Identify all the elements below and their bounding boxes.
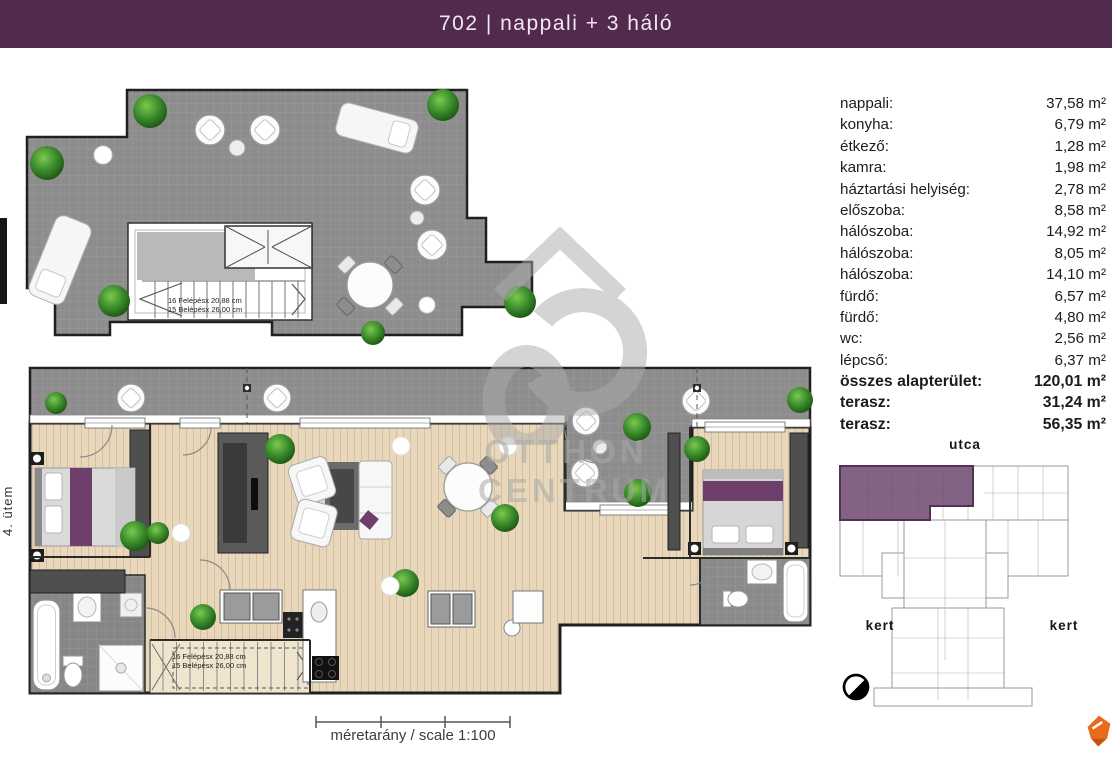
toilet (728, 591, 748, 607)
stair-note-line: 15 Belépésx 26,00 cm (168, 305, 242, 314)
scale-label: méretarány / scale 1:100 (300, 727, 526, 744)
stair-note-line: 15 Belépésx 26,00 cm (172, 661, 246, 670)
kitchen-sink (311, 602, 327, 622)
street-label: utca (890, 437, 1040, 452)
stair-note-lower: 16 Felépésx 20,88 cm 15 Belépésx 26,00 c… (172, 652, 246, 670)
room-area: 4,80 m² (1055, 307, 1107, 328)
room-area: 1,28 m² (1055, 136, 1107, 157)
room-name: hálószoba: (840, 221, 913, 242)
room-name: fürdő: (840, 307, 879, 328)
stair-note-upper: 16 Felépésx 20,88 cm 15 Belépésx 26,00 c… (168, 296, 242, 314)
room-area: 6,57 m² (1055, 286, 1107, 307)
room-name: fürdő: (840, 286, 879, 307)
toilet (64, 663, 82, 687)
room-area: 14,92 m² (1046, 221, 1106, 242)
area-row: fürdő:6,57 m² (840, 286, 1106, 307)
room-name: terasz: (840, 392, 891, 413)
area-row: konyha:6,79 m² (840, 114, 1106, 135)
roof-terrace-plan (15, 85, 540, 347)
stair-note-line: 16 Felépésx 20,88 cm (172, 652, 246, 661)
area-table: nappali:37,58 m² konyha:6,79 m² étkező:1… (840, 93, 1106, 435)
room-name: nappali: (840, 93, 893, 114)
area-row: étkező:1,28 m² (840, 136, 1106, 157)
bathroom-right (700, 558, 810, 625)
compass-icon (842, 673, 870, 701)
area-row-total: terasz:56,35 m² (840, 414, 1106, 435)
area-row: wc:2,56 m² (840, 328, 1106, 349)
room-area: 120,01 m² (1034, 371, 1106, 392)
garden-label-left: kert (858, 618, 902, 633)
room-area: 14,10 m² (1046, 264, 1106, 285)
room-name: összes alapterület: (840, 371, 982, 392)
room-area: 6,37 m² (1055, 350, 1107, 371)
room-area: 2,78 m² (1055, 179, 1107, 200)
watermark-text: OTTHON (478, 434, 654, 470)
room-name: hálószoba: (840, 243, 913, 264)
room-area: 56,35 m² (1043, 414, 1106, 435)
watermark-text: CENTRUM (478, 473, 654, 509)
sofa (359, 461, 392, 539)
room-name: lépcső: (840, 350, 888, 371)
room-name: előszoba: (840, 200, 905, 221)
room-area: 8,05 m² (1055, 243, 1107, 264)
room-name: terasz: (840, 414, 891, 435)
room-area: 8,58 m² (1055, 200, 1107, 221)
title-bar: 702 | nappali + 3 háló (0, 0, 1112, 48)
area-row-total: terasz:31,24 m² (840, 392, 1106, 413)
area-row: kamra:1,98 m² (840, 157, 1106, 178)
page-title: 702 | nappali + 3 háló (439, 12, 673, 36)
site-plan (838, 458, 1070, 708)
room-name: háztartási helyiség: (840, 179, 970, 200)
room-area: 37,58 m² (1046, 93, 1106, 114)
area-row: hálószoba:8,05 m² (840, 243, 1106, 264)
room-name: hálószoba: (840, 264, 913, 285)
cooktop (283, 612, 303, 638)
area-row: lépcső:6,37 m² (840, 350, 1106, 371)
fridge (513, 591, 543, 623)
otthon-centrum-logo-icon (1086, 710, 1112, 752)
neighbor-wall-segment (0, 218, 7, 304)
room-name: étkező: (840, 136, 889, 157)
area-row: nappali:37,58 m² (840, 93, 1106, 114)
room-area: 31,24 m² (1043, 392, 1106, 413)
area-row: hálószoba:14,92 m² (840, 221, 1106, 242)
floorplan-sheet: 702 | nappali + 3 háló (0, 0, 1112, 764)
apartment-floor-plan (15, 360, 815, 705)
area-row: előszoba:8,58 m² (840, 200, 1106, 221)
room-area: 6,79 m² (1055, 114, 1107, 135)
stair-note-line: 16 Felépésx 20,88 cm (168, 296, 242, 305)
tv (251, 478, 258, 510)
room-name: kamra: (840, 157, 886, 178)
area-row-total: összes alapterület:120,01 m² (840, 371, 1106, 392)
room-area: 2,56 m² (1055, 328, 1107, 349)
media-wall (218, 433, 268, 553)
room-name: konyha: (840, 114, 893, 135)
area-row: hálószoba:14,10 m² (840, 264, 1106, 285)
bed-right (688, 470, 798, 555)
room-area: 1,98 m² (1055, 157, 1107, 178)
garden-label-right: kert (1040, 618, 1088, 633)
washing-machine (120, 593, 142, 617)
area-row: háztartási helyiség:2,78 m² (840, 179, 1106, 200)
area-row: fürdő:4,80 m² (840, 307, 1106, 328)
bed-left (30, 452, 135, 562)
phase-label: 4. ütem (0, 468, 18, 554)
room-name: wc: (840, 328, 863, 349)
otthon-centrum-monogram-icon (480, 215, 650, 445)
